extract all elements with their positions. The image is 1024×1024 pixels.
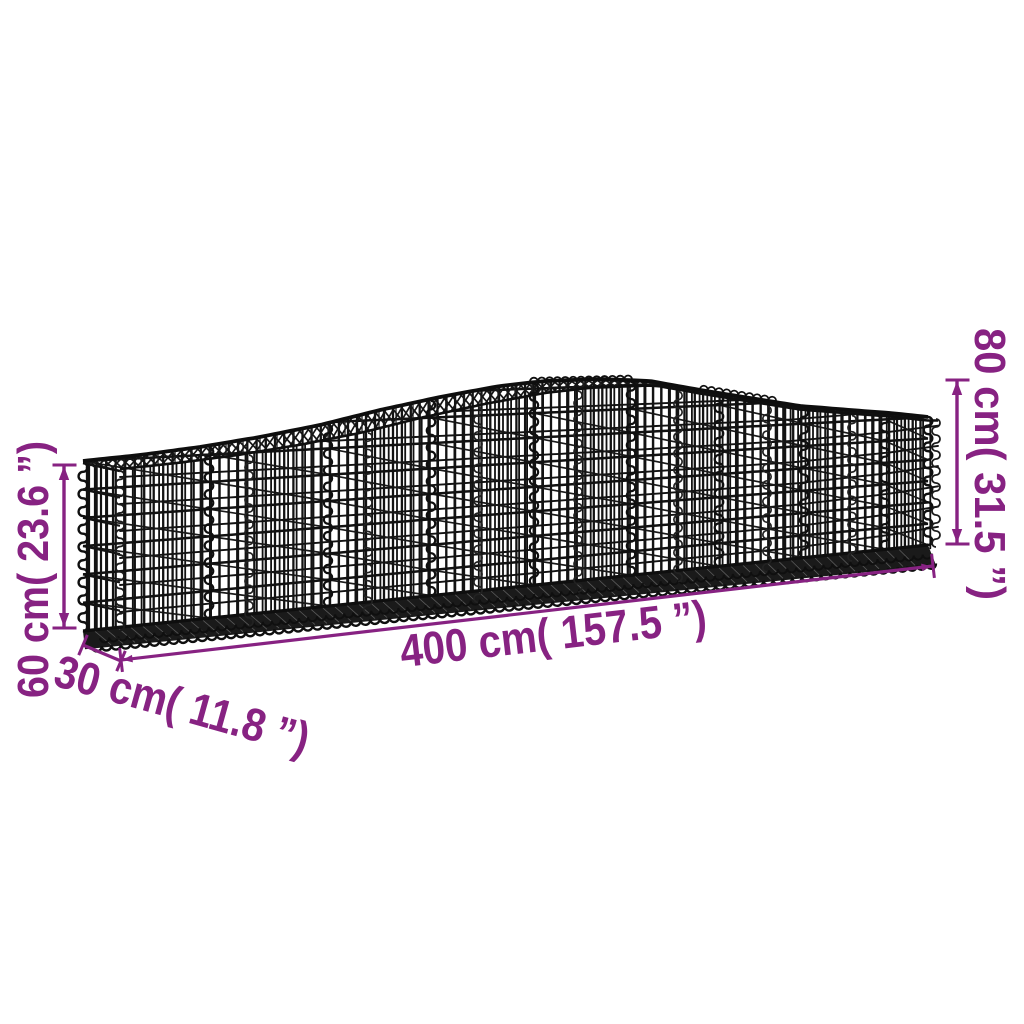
svg-text:30 cm( 11.8 ”): 30 cm( 11.8 ”) — [49, 645, 315, 765]
svg-text:60 cm( 23.6 ”): 60 cm( 23.6 ”) — [9, 441, 58, 698]
svg-text:80 cm( 31.5 ”): 80 cm( 31.5 ”) — [965, 328, 1014, 600]
